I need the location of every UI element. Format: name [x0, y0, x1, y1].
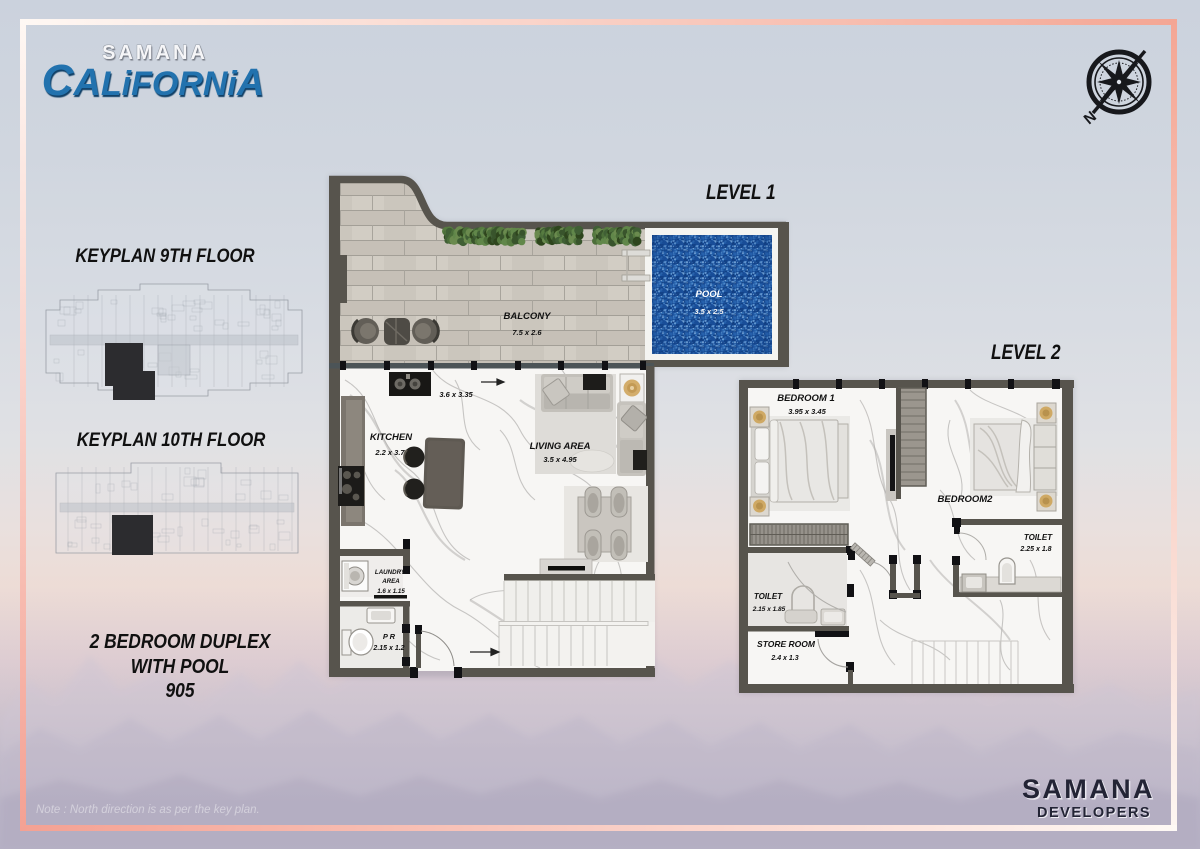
svg-text:TOILET: TOILET	[1024, 533, 1053, 542]
svg-text:BEDROOM2: BEDROOM2	[938, 494, 994, 505]
svg-text:7.5 x 2.6: 7.5 x 2.6	[512, 328, 542, 337]
svg-text:2.4 x 1.3: 2.4 x 1.3	[770, 655, 798, 662]
svg-text:BEDROOM 1: BEDROOM 1	[777, 393, 835, 404]
svg-text:2.15 x 1.2: 2.15 x 1.2	[372, 645, 404, 652]
svg-text:TOILET: TOILET	[754, 592, 783, 601]
svg-text:STORE ROOM: STORE ROOM	[757, 639, 816, 649]
svg-text:3.6 x 3.35: 3.6 x 3.35	[439, 390, 473, 399]
svg-text:2.15 x 1.85: 2.15 x 1.85	[752, 606, 786, 613]
svg-text:AREA: AREA	[381, 578, 400, 585]
svg-text:BALCONY: BALCONY	[504, 311, 553, 322]
svg-text:POOL: POOL	[696, 289, 723, 300]
svg-text:LAUNDRY: LAUNDRY	[375, 569, 406, 576]
svg-text:LIVING AREA: LIVING AREA	[530, 441, 591, 452]
svg-text:KITCHEN: KITCHEN	[370, 432, 413, 443]
svg-text:3.5 x 4.95: 3.5 x 4.95	[543, 455, 577, 464]
svg-text:P R: P R	[383, 632, 396, 641]
svg-text:1.6 x 1.15: 1.6 x 1.15	[377, 588, 405, 595]
svg-text:3.95 x 3.45: 3.95 x 3.45	[788, 407, 826, 416]
svg-text:2.2 x 3.7: 2.2 x 3.7	[374, 448, 405, 457]
svg-text:2.25 x 1.8: 2.25 x 1.8	[1019, 546, 1051, 553]
svg-text:3.5 x 2.5: 3.5 x 2.5	[694, 307, 724, 316]
